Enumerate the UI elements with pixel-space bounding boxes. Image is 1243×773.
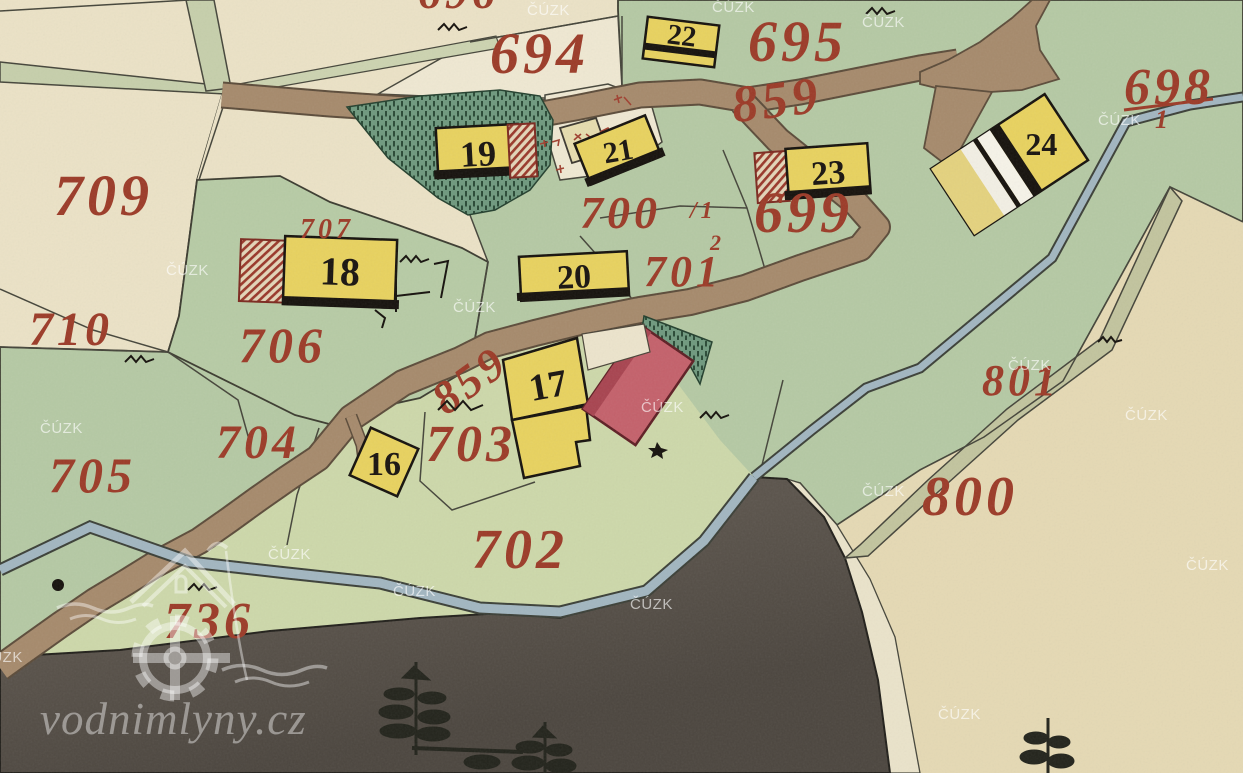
svg-text:vodnimlyny.cz: vodnimlyny.cz	[40, 694, 307, 744]
svg-text:ČÚZK: ČÚZK	[40, 420, 83, 437]
svg-text:ČÚZK: ČÚZK	[393, 583, 436, 600]
svg-text:ČÚZK: ČÚZK	[527, 2, 570, 19]
svg-text:ČÚZK: ČÚZK	[641, 399, 684, 416]
svg-text:ČÚZK: ČÚZK	[0, 649, 23, 666]
svg-text:ČÚZK: ČÚZK	[268, 546, 311, 563]
svg-text:ČÚZK: ČÚZK	[1186, 557, 1229, 574]
svg-text:ČÚZK: ČÚZK	[1098, 112, 1141, 129]
svg-text:ČÚZK: ČÚZK	[938, 706, 981, 723]
svg-text:ČÚZK: ČÚZK	[1008, 357, 1051, 374]
svg-text:ČÚZK: ČÚZK	[712, 0, 755, 16]
svg-text:ČÚZK: ČÚZK	[862, 14, 905, 31]
svg-text:ČÚZK: ČÚZK	[453, 299, 496, 316]
svg-text:ČÚZK: ČÚZK	[1125, 407, 1168, 424]
svg-text:ČÚZK: ČÚZK	[166, 262, 209, 279]
svg-text:ČÚZK: ČÚZK	[862, 483, 905, 500]
svg-text:ČÚZK: ČÚZK	[630, 596, 673, 613]
